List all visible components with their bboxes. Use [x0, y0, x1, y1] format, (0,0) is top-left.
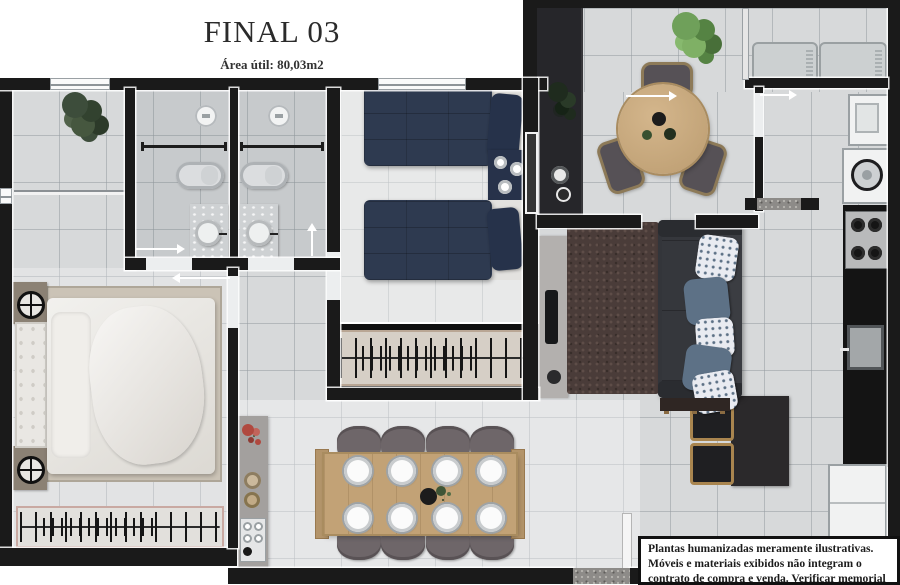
wall-service-left — [523, 0, 537, 88]
flowers-red — [242, 424, 254, 436]
burner-1 — [851, 218, 865, 232]
window-top-1 — [50, 78, 110, 90]
washer-door — [851, 159, 883, 191]
kitchen-island — [731, 396, 789, 486]
plate-4 — [477, 457, 505, 485]
cup-2 — [510, 162, 524, 176]
living-room-rug — [567, 222, 659, 394]
fridge-door-split — [830, 502, 885, 504]
pillow-navy-1 — [486, 93, 523, 158]
bedroom2-wardrobe-frame — [330, 324, 540, 392]
lamp-bottom — [17, 456, 45, 484]
arrow-bath2-door — [311, 226, 313, 256]
plate-3 — [433, 457, 461, 485]
door-gap-bath2 — [248, 258, 294, 270]
sideboard-bowl-1 — [244, 472, 261, 489]
page-title: FINAL 03 — [158, 14, 386, 50]
burner-4 — [868, 246, 882, 260]
cup-3 — [498, 180, 512, 194]
shower-glass-1 — [141, 145, 227, 148]
wall-bath-divider — [230, 88, 238, 270]
single-bed-1 — [364, 86, 492, 166]
arrow-laundry-door — [760, 94, 794, 96]
centerpiece-pot — [420, 488, 437, 505]
door-gap-bath1 — [146, 258, 192, 270]
basin-1 — [195, 220, 221, 246]
cooktop — [845, 211, 888, 269]
wall-laundry-bottom-b — [801, 198, 819, 210]
window-left — [0, 188, 12, 204]
door-gap-laundry — [755, 93, 763, 137]
wall-laundry-top — [745, 78, 888, 88]
table-decor-sprig — [642, 130, 652, 140]
wall-bedroom2-left — [327, 88, 340, 400]
tv — [545, 290, 558, 344]
bedroom2-tv — [525, 132, 538, 214]
bathtub-2 — [240, 162, 288, 189]
burner-2 — [868, 218, 882, 232]
bar-stool-2 — [690, 443, 734, 485]
double-bed — [47, 298, 215, 474]
sliding-door-track — [14, 190, 126, 195]
window-top-2 — [378, 78, 466, 90]
wall-bedroom2-right — [523, 78, 538, 400]
entry-threshold-granite — [573, 568, 630, 584]
master-wardrobe — [16, 506, 224, 548]
wall-condenser-divider — [742, 8, 749, 80]
sideboard-tray — [240, 518, 266, 562]
sofa-console — [660, 398, 730, 411]
wall-outer-right — [888, 0, 900, 574]
entry-door-leaf — [623, 514, 631, 570]
wall-service-top — [523, 0, 900, 8]
plate-8 — [477, 504, 505, 532]
wall-living-top-right — [696, 215, 758, 228]
ac-condenser-1 — [752, 42, 818, 82]
cushion-patterned-1 — [694, 233, 740, 282]
tray-dot-1 — [243, 522, 252, 531]
tray-dot-3 — [243, 534, 252, 543]
bed-duvet-pillow — [82, 300, 212, 470]
table-decor-plant — [664, 128, 676, 140]
bedroom2-wardrobe — [336, 330, 534, 386]
round-dining-table — [618, 84, 708, 174]
sideboard-bowl-2 — [244, 492, 260, 508]
single-bed-2 — [364, 200, 492, 280]
plate-7 — [433, 504, 461, 532]
tray-dot-4 — [254, 534, 263, 543]
bathtub-1 — [176, 162, 224, 189]
tray-dot-2 — [254, 522, 263, 531]
wall-living-top-left — [537, 215, 641, 228]
area-label: Área útil: 80,03m2 — [158, 57, 386, 73]
wall-bottom-dining — [228, 568, 573, 584]
wall-outer-left — [0, 78, 12, 566]
tank-basin — [855, 103, 879, 133]
laundry-tank — [848, 94, 890, 146]
shower-glass-2 — [240, 145, 324, 148]
lamp-top — [17, 291, 45, 319]
shower-head-2 — [268, 105, 290, 127]
wall-bottom-left — [0, 548, 237, 566]
washing-machine — [842, 148, 890, 204]
centerpiece-greens — [436, 486, 446, 496]
tray-dot-5 — [243, 547, 252, 556]
tv-rack-decor — [547, 370, 561, 384]
disclaimer-box: Plantas humanizadas meramente ilustrativ… — [638, 536, 900, 585]
refrigerator — [828, 464, 887, 544]
laundry-threshold-granite — [757, 198, 801, 210]
plant-master — [62, 92, 88, 118]
arrow-kitchen-flow — [626, 95, 674, 97]
plate-2 — [388, 457, 416, 485]
headboard — [15, 322, 47, 448]
wall-laundry-bottom-a — [745, 198, 757, 210]
basin-2 — [246, 220, 272, 246]
arrow-master-door — [175, 277, 230, 279]
arrow-bath1-door — [136, 248, 182, 250]
floor-plan-final-03: FINAL 03 Área útil: 80,03m2 Plantas huma… — [0, 0, 900, 585]
plant-cabinet — [548, 82, 568, 102]
door-gap-master — [228, 276, 238, 328]
bowl-2 — [556, 187, 571, 202]
ac-condenser-2 — [819, 42, 887, 82]
outside-mask-bottom-left — [0, 566, 228, 585]
wall-bath1-left — [125, 88, 135, 270]
wall-bedroom2-bottom — [327, 388, 539, 400]
kitchen-sink — [847, 325, 884, 370]
dining-sideboard — [238, 416, 268, 568]
shower-head-1 — [195, 105, 217, 127]
plate-5 — [344, 504, 372, 532]
cup-1 — [494, 156, 507, 169]
table-decor-dark — [652, 112, 666, 126]
plant-kitchen — [672, 12, 700, 40]
plate-6 — [388, 504, 416, 532]
plate-1 — [344, 457, 372, 485]
burner-3 — [851, 246, 865, 260]
bed-pillow-side — [51, 312, 91, 458]
pillow-navy-2 — [486, 207, 523, 272]
bowl-1 — [551, 166, 569, 184]
plan-header: FINAL 03 Área útil: 80,03m2 — [158, 14, 386, 73]
